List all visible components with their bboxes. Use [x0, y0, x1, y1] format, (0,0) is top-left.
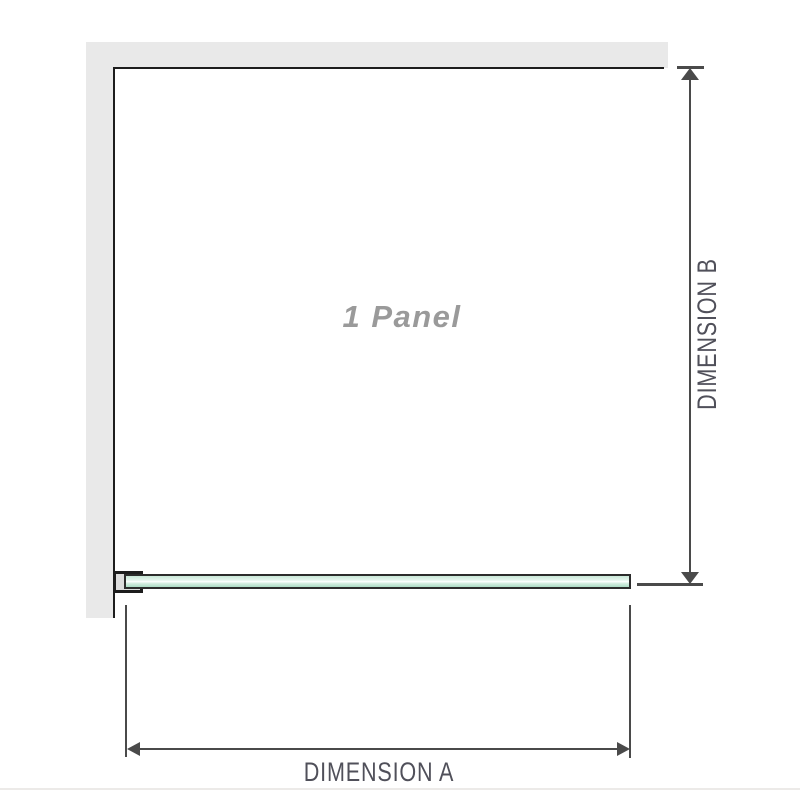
glass-panel	[124, 574, 631, 589]
arrowhead-up-icon	[681, 68, 699, 80]
wall-top	[86, 42, 668, 68]
panel-count-label: 1 Panel	[252, 297, 552, 337]
arrowhead-down-icon	[681, 572, 699, 584]
panel-outline-left	[113, 67, 115, 618]
arrowhead-right-icon	[617, 742, 630, 756]
arrowhead-left-icon	[127, 742, 140, 756]
wall-left	[86, 42, 113, 618]
shower-panel-diagram: 1 Panel DIMENSION B DIMENSION A	[0, 0, 800, 800]
bottom-divider	[0, 788, 800, 790]
panel-outline-top	[113, 67, 664, 69]
dimension-a-right-extension-line	[629, 605, 631, 758]
dimension-a-line	[139, 748, 619, 750]
dimension-a-left-extension-line	[125, 605, 127, 757]
dimension-b-label: DIMENSION B	[692, 246, 722, 422]
dimension-a-label: DIMENSION A	[178, 756, 580, 788]
dimension-b-line	[689, 78, 691, 574]
